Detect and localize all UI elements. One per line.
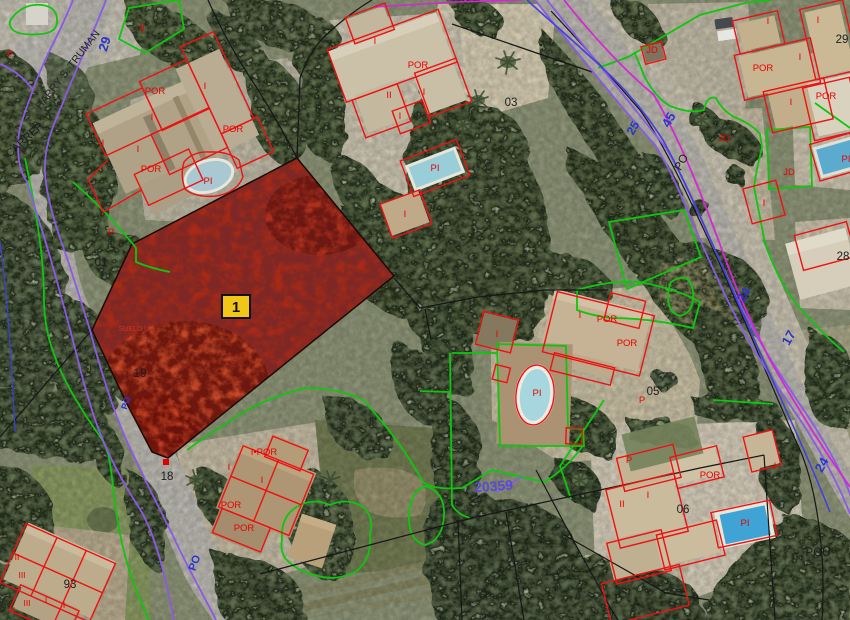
- svg-text:II: II: [386, 90, 391, 101]
- svg-text:93: 93: [64, 579, 77, 591]
- svg-text:JD: JD: [783, 167, 795, 178]
- svg-text:I: I: [13, 605, 15, 615]
- svg-text:II: II: [139, 23, 144, 34]
- svg-text:III: III: [23, 598, 30, 608]
- svg-text:03: 03: [505, 97, 518, 109]
- svg-text:I: I: [647, 490, 650, 501]
- svg-text:PI: PI: [204, 176, 213, 187]
- svg-text:PI: PI: [842, 154, 850, 165]
- svg-text:I: I: [45, 595, 47, 605]
- svg-text:I•POR: I•POR: [251, 447, 278, 458]
- svg-text:I: I: [261, 475, 264, 486]
- svg-text:01: 01: [95, 257, 108, 269]
- svg-text:19: 19: [134, 368, 147, 380]
- svg-text:POR: POR: [753, 63, 774, 74]
- svg-text:POR: POR: [816, 91, 837, 102]
- svg-text:28: 28: [837, 251, 850, 263]
- svg-text:I: I: [496, 329, 499, 340]
- svg-text:I: I: [790, 97, 793, 108]
- svg-text:I: I: [767, 16, 770, 27]
- svg-text:P: P: [639, 395, 645, 406]
- svg-text:POR: POR: [234, 523, 255, 534]
- svg-text:POR: POR: [700, 470, 721, 481]
- svg-text:I: I: [423, 87, 426, 98]
- svg-text:I: I: [763, 198, 766, 209]
- svg-text:I: I: [63, 600, 65, 610]
- svg-text:POR: POR: [145, 86, 166, 97]
- svg-text:JD: JD: [646, 45, 658, 56]
- svg-text:P: P: [626, 455, 632, 466]
- svg-text:05: 05: [647, 386, 660, 398]
- svg-text:I: I: [151, 112, 154, 123]
- svg-text:29: 29: [836, 34, 849, 46]
- svg-text:I: I: [228, 462, 231, 473]
- svg-text:I: I: [404, 209, 407, 220]
- svg-text:SUELO U: SUELO U: [119, 326, 150, 333]
- svg-text:PI: PI: [741, 518, 750, 529]
- svg-text:POR: POR: [597, 314, 618, 325]
- svg-text:06: 06: [677, 504, 690, 516]
- svg-text:I: I: [102, 138, 105, 149]
- svg-text:1: 1: [232, 299, 240, 316]
- svg-text:18: 18: [161, 471, 174, 483]
- svg-text:I: I: [374, 36, 377, 47]
- svg-text:POR: POR: [408, 60, 429, 71]
- svg-text:20359: 20359: [474, 477, 514, 496]
- svg-text:POR: POR: [223, 124, 244, 135]
- svg-text:P: P: [7, 49, 13, 60]
- svg-text:I: I: [817, 15, 820, 26]
- svg-text:III: III: [18, 570, 25, 580]
- svg-text:POR: POR: [617, 338, 638, 349]
- svg-text:JD: JD: [718, 133, 730, 144]
- svg-text:PI: PI: [533, 388, 542, 399]
- svg-text:I: I: [204, 81, 207, 92]
- svg-text:II: II: [619, 499, 624, 510]
- svg-text:II: II: [15, 552, 20, 562]
- svg-text:I: I: [799, 52, 802, 63]
- svg-text:PI: PI: [431, 163, 440, 174]
- svg-text:POU: POU: [806, 547, 831, 559]
- svg-text:I: I: [137, 144, 140, 155]
- svg-text:I: I: [399, 111, 402, 122]
- svg-text:I: I: [579, 310, 582, 321]
- svg-text:POR: POR: [221, 500, 242, 511]
- svg-text:I: I: [774, 461, 777, 472]
- svg-text:POR: POR: [141, 164, 162, 175]
- svg-text:P: P: [108, 227, 114, 238]
